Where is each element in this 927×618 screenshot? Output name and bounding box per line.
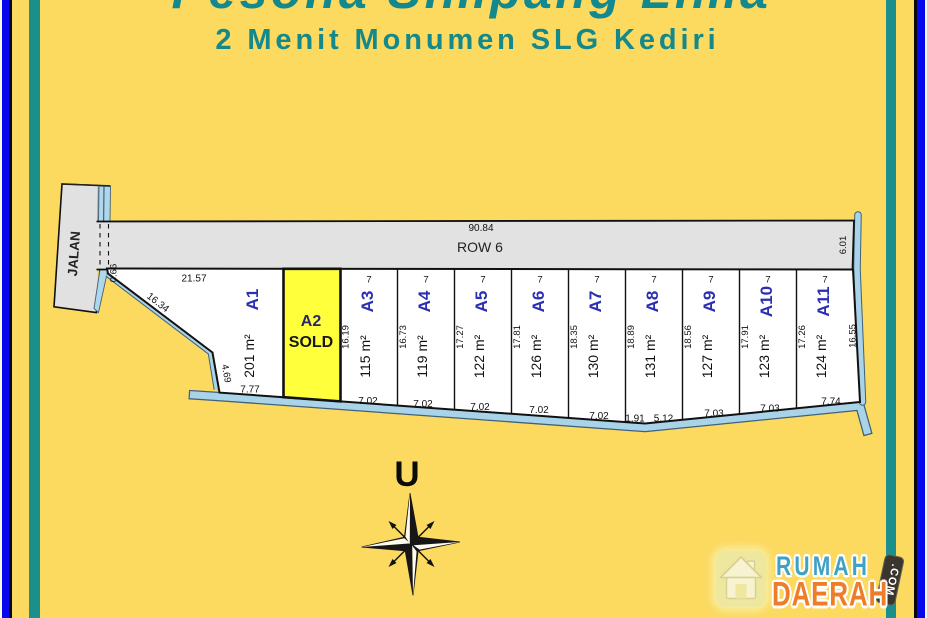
svg-text:7.02: 7.02 — [529, 405, 549, 416]
svg-text:U: U — [394, 455, 419, 494]
svg-text:18.56: 18.56 — [683, 325, 694, 349]
svg-text:18.35: 18.35 — [569, 325, 580, 349]
svg-text:A3: A3 — [358, 291, 377, 313]
svg-text:A6: A6 — [529, 291, 548, 313]
svg-text:7: 7 — [822, 275, 827, 286]
svg-text:115 m²: 115 m² — [357, 335, 373, 378]
svg-text:7.03: 7.03 — [760, 404, 780, 415]
svg-text:7.02: 7.02 — [589, 411, 609, 422]
svg-text:A9: A9 — [700, 291, 719, 313]
svg-text:126 m²: 126 m² — [528, 334, 544, 378]
svg-text:7: 7 — [480, 275, 485, 286]
svg-text:131 m²: 131 m² — [642, 334, 658, 378]
svg-text:18.89: 18.89 — [626, 325, 637, 349]
svg-text:119 m²: 119 m² — [414, 335, 430, 378]
svg-text:123 m²: 123 m² — [756, 334, 772, 378]
svg-text:16.73: 16.73 — [398, 325, 409, 349]
svg-text:124 m²: 124 m² — [813, 334, 829, 378]
svg-text:122 m²: 122 m² — [471, 334, 487, 378]
svg-text:127 m²: 127 m² — [699, 334, 715, 378]
svg-text:16.19: 16.19 — [341, 325, 352, 349]
svg-text:16.55: 16.55 — [848, 324, 859, 348]
svg-text:7.74: 7.74 — [821, 397, 841, 408]
svg-text:7: 7 — [594, 275, 599, 286]
svg-text:7.03: 7.03 — [704, 409, 724, 420]
svg-text:7.02: 7.02 — [470, 402, 490, 413]
svg-text:A7: A7 — [586, 291, 605, 313]
svg-text:A8: A8 — [643, 291, 662, 313]
svg-text:ROW 6: ROW 6 — [457, 239, 503, 255]
svg-text:A11: A11 — [814, 286, 833, 316]
svg-text:A2: A2 — [301, 313, 322, 330]
svg-text:SOLD: SOLD — [289, 334, 333, 351]
svg-text:7.02: 7.02 — [358, 396, 378, 407]
svg-text:A1: A1 — [243, 289, 262, 311]
svg-text:0.66: 0.66 — [109, 264, 120, 283]
svg-text:17.91: 17.91 — [740, 325, 751, 349]
svg-text:A5: A5 — [472, 291, 491, 313]
svg-text:7: 7 — [765, 275, 770, 286]
svg-text:130 m²: 130 m² — [585, 334, 601, 378]
svg-text:5.12: 5.12 — [654, 414, 674, 425]
svg-text:21.57: 21.57 — [181, 274, 206, 285]
svg-text:17.27: 17.27 — [455, 325, 466, 349]
svg-text:7: 7 — [366, 275, 371, 286]
svg-text:7: 7 — [708, 275, 713, 286]
svg-text:90.84: 90.84 — [468, 223, 493, 234]
svg-text:6.01: 6.01 — [838, 236, 849, 255]
svg-text:7: 7 — [651, 275, 656, 286]
svg-text:A4: A4 — [415, 290, 434, 312]
svg-text:1.91: 1.91 — [625, 414, 645, 425]
svg-text:7: 7 — [423, 275, 428, 286]
svg-text:7.02: 7.02 — [413, 399, 433, 410]
svg-text:7: 7 — [537, 275, 542, 286]
svg-text:7.77: 7.77 — [240, 385, 260, 396]
svg-text:17.26: 17.26 — [797, 325, 808, 349]
svg-text:17.81: 17.81 — [512, 325, 523, 349]
svg-text:A10: A10 — [757, 286, 776, 317]
svg-text:JALAN: JALAN — [65, 231, 83, 277]
svg-text:201 m²: 201 m² — [241, 334, 257, 378]
